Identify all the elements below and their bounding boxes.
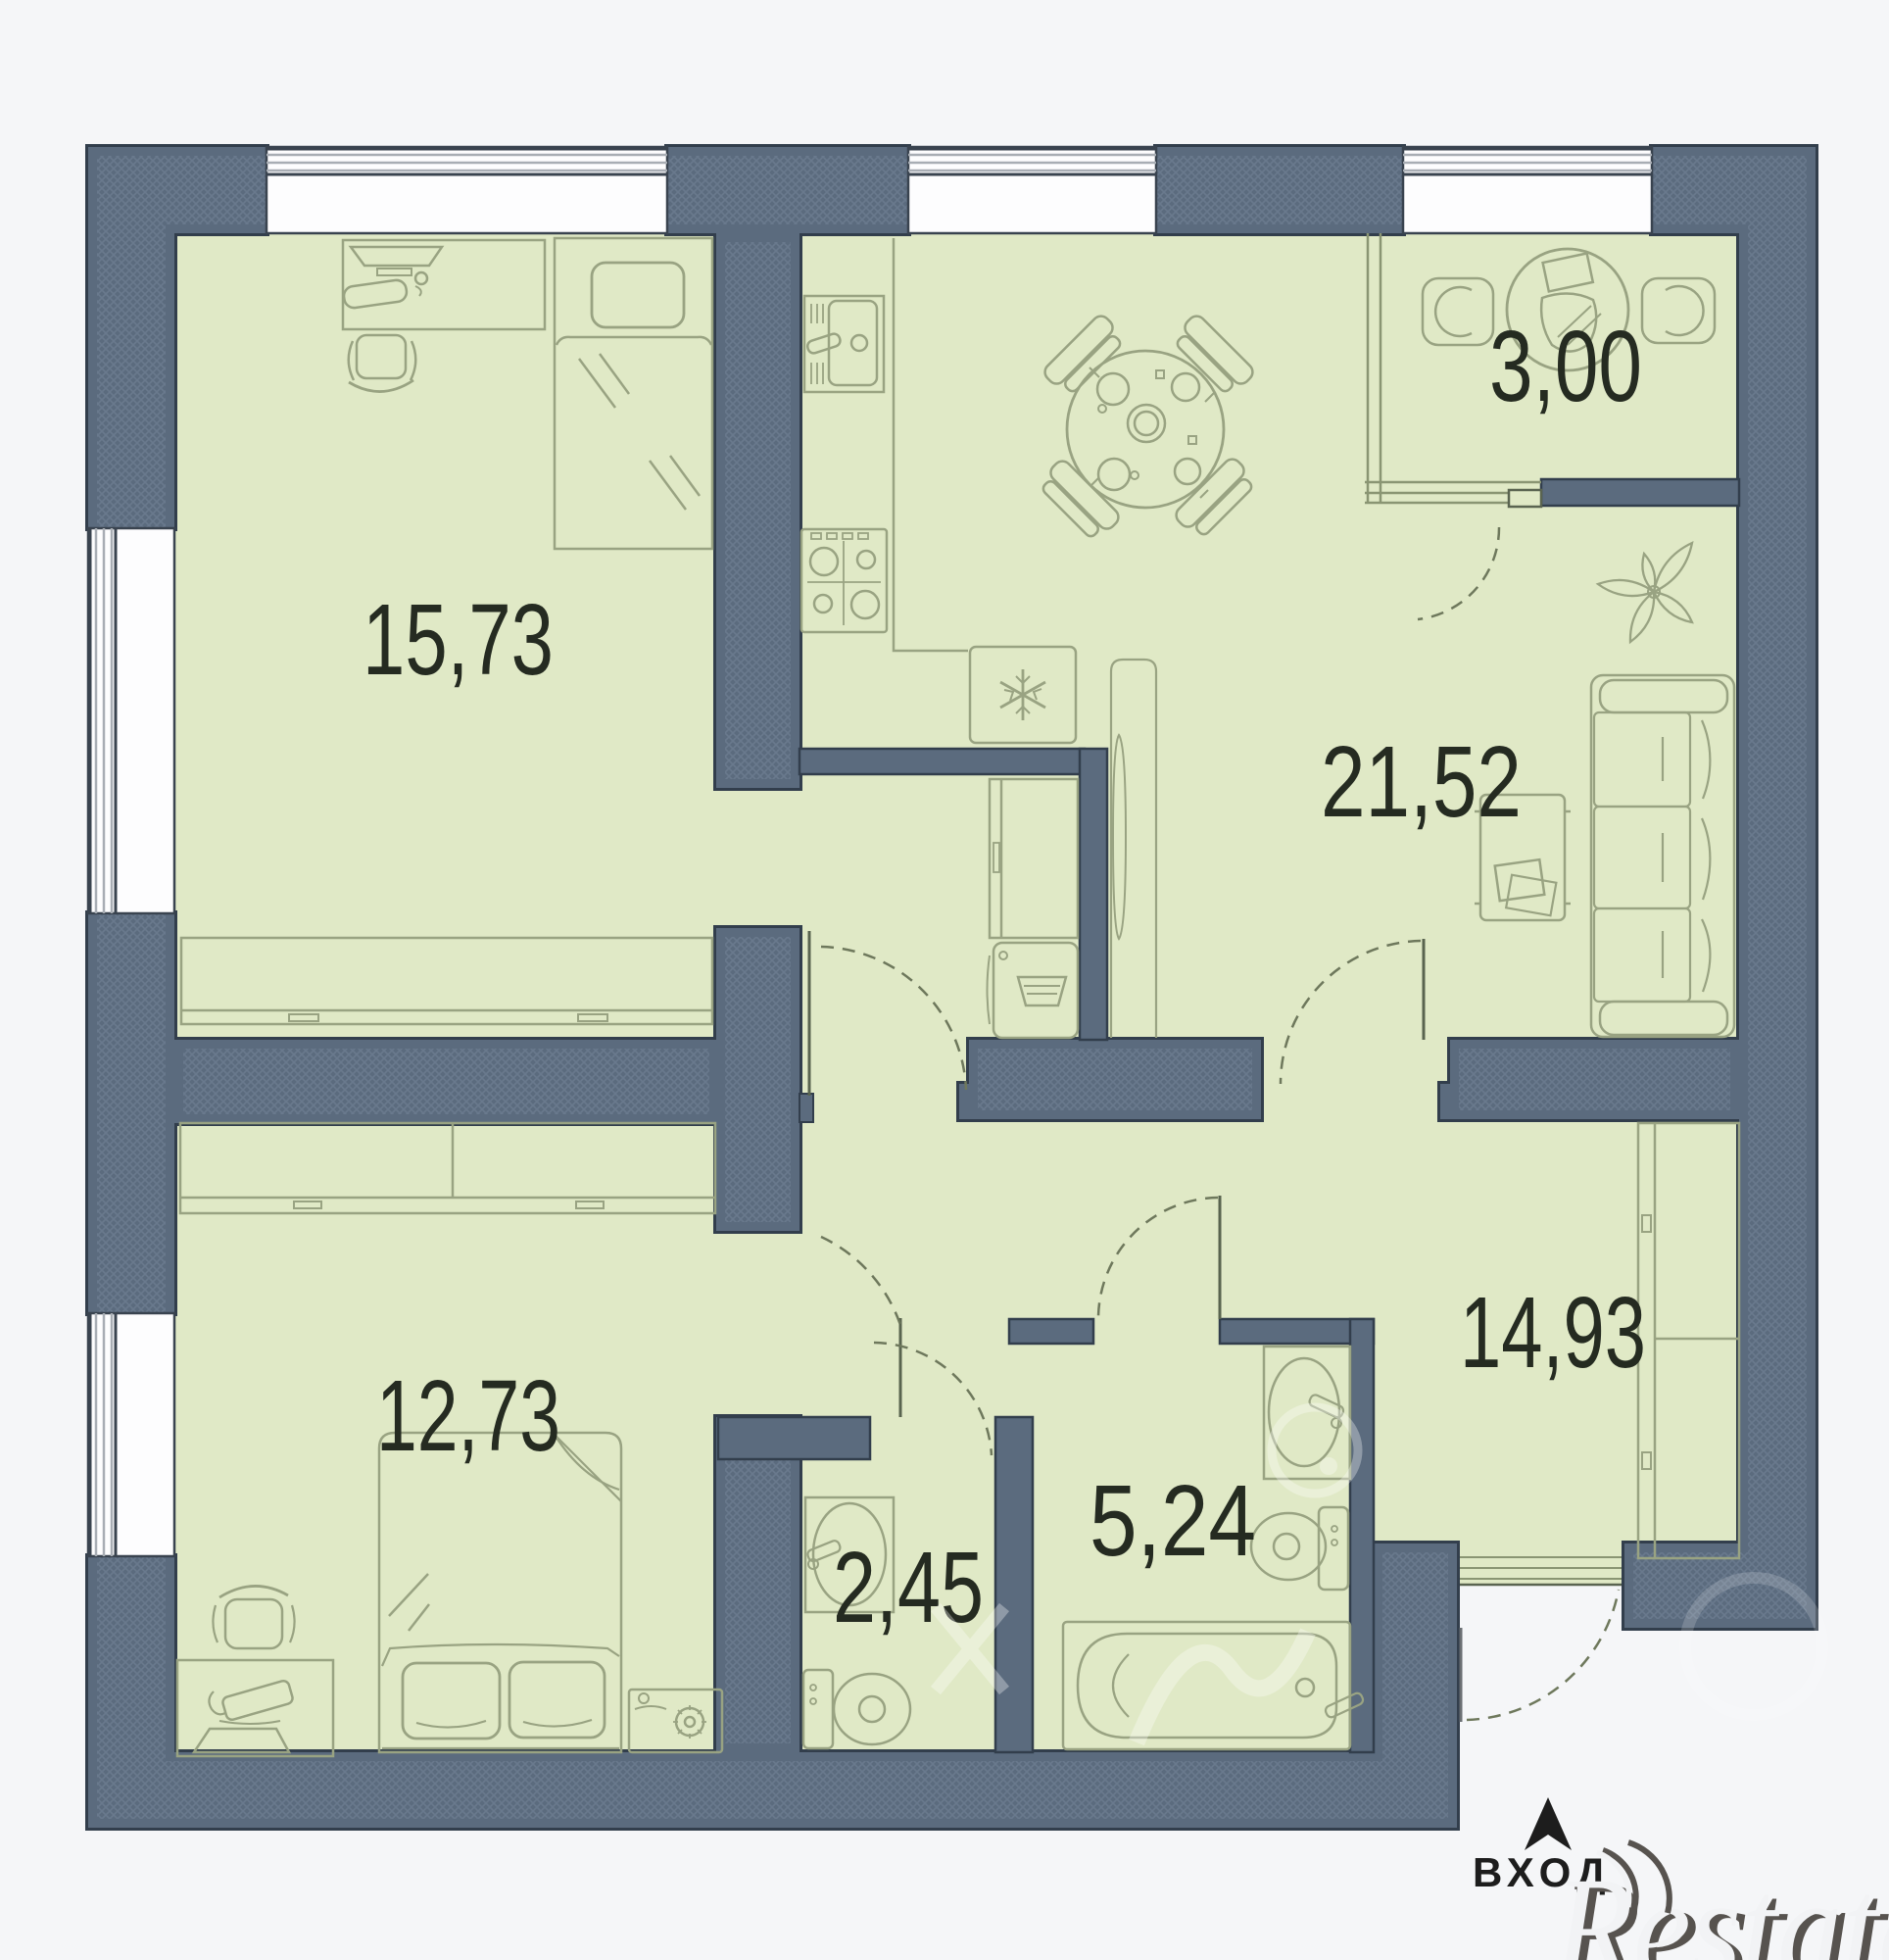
- svg-text:3,00: 3,00: [1489, 310, 1642, 422]
- svg-text:Restate: Restate: [1553, 1847, 1889, 1960]
- svg-text:12,73: 12,73: [376, 1359, 560, 1472]
- svg-text:2,45: 2,45: [833, 1531, 984, 1643]
- svg-text:15,73: 15,73: [363, 583, 554, 696]
- svg-text:5,24: 5,24: [1090, 1464, 1256, 1577]
- svg-text:14,93: 14,93: [1460, 1276, 1646, 1389]
- svg-text:21,52: 21,52: [1321, 725, 1522, 838]
